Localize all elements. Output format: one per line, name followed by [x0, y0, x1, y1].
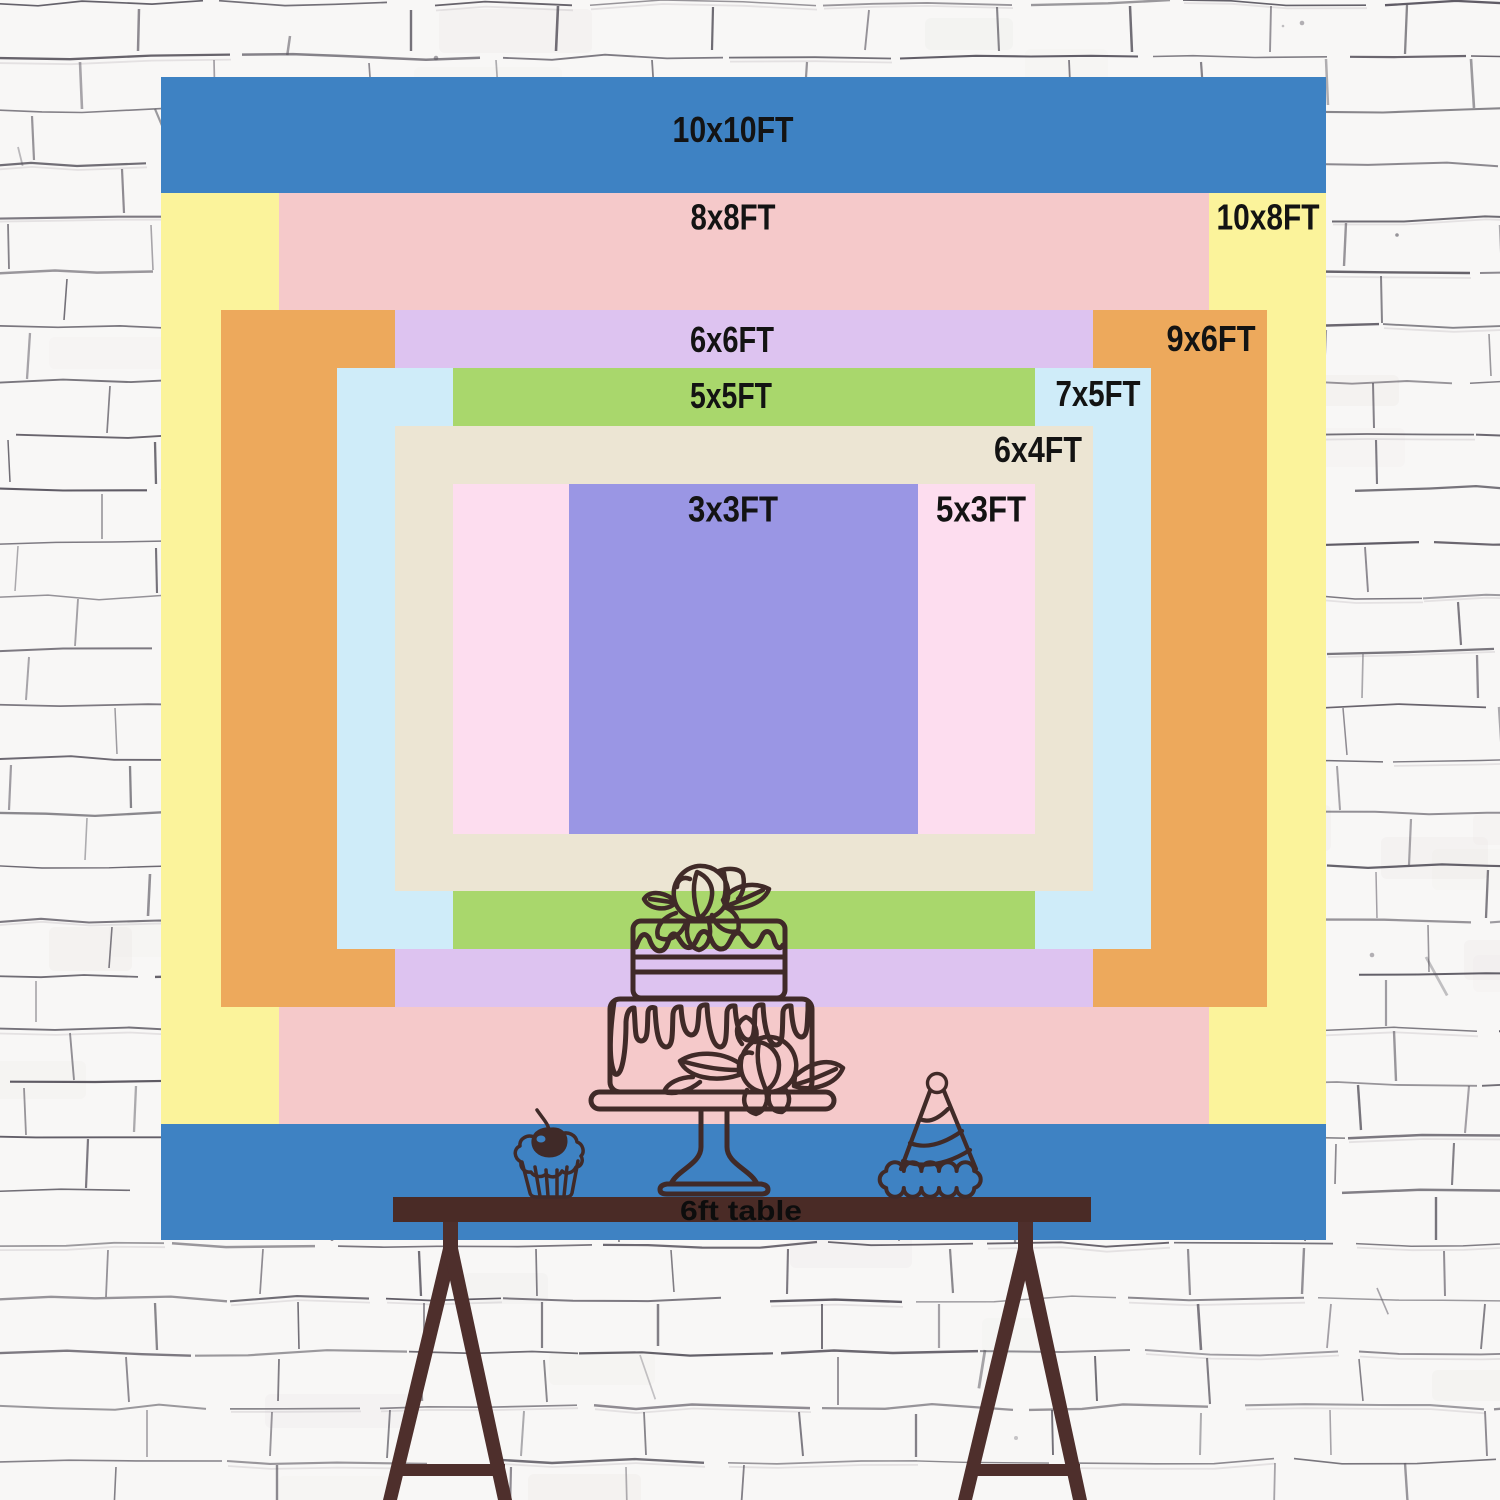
svg-text:5x3FT: 5x3FT — [936, 489, 1026, 530]
svg-text:6x6FT: 6x6FT — [690, 319, 774, 360]
svg-text:10x10FT: 10x10FT — [673, 109, 794, 150]
svg-text:9x6FT: 9x6FT — [1167, 318, 1256, 359]
svg-text:3x3FT: 3x3FT — [688, 489, 778, 530]
svg-text:5x5FT: 5x5FT — [690, 375, 772, 416]
svg-text:6ft table: 6ft table — [680, 1195, 802, 1226]
svg-text:7x5FT: 7x5FT — [1056, 373, 1141, 414]
svg-text:10x8FT: 10x8FT — [1217, 197, 1320, 238]
svg-text:8x8FT: 8x8FT — [691, 197, 776, 238]
svg-text:6x4FT: 6x4FT — [994, 429, 1082, 470]
